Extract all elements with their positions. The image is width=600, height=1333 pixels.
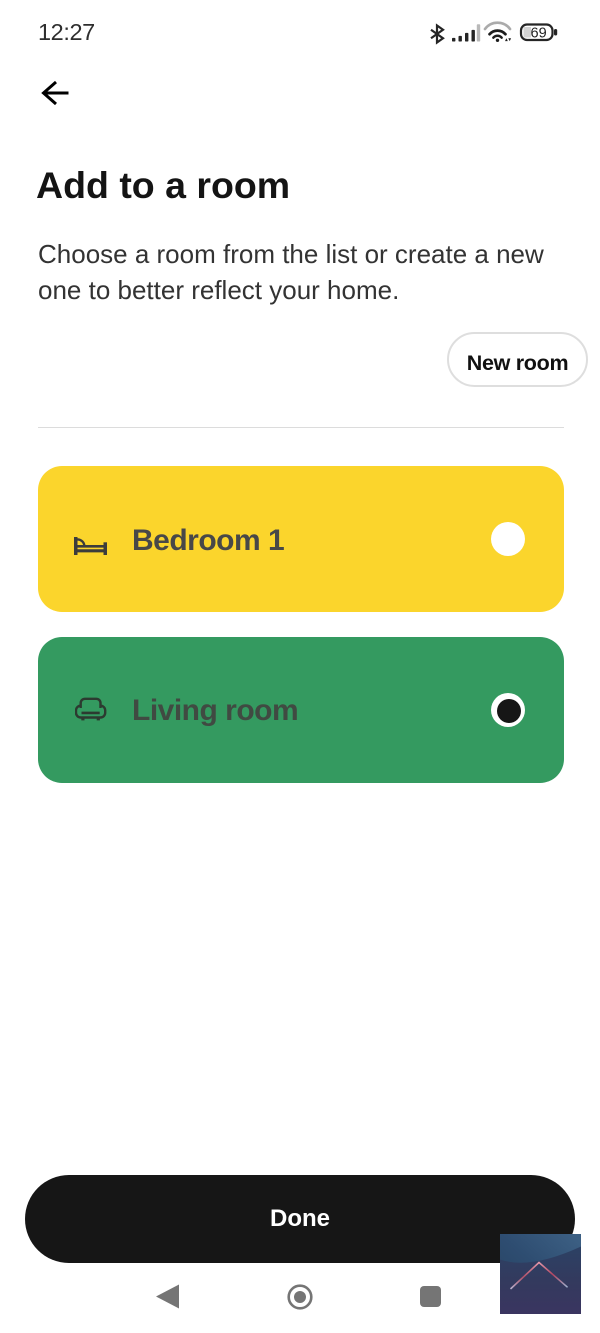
svg-text:69: 69 [531,26,547,42]
